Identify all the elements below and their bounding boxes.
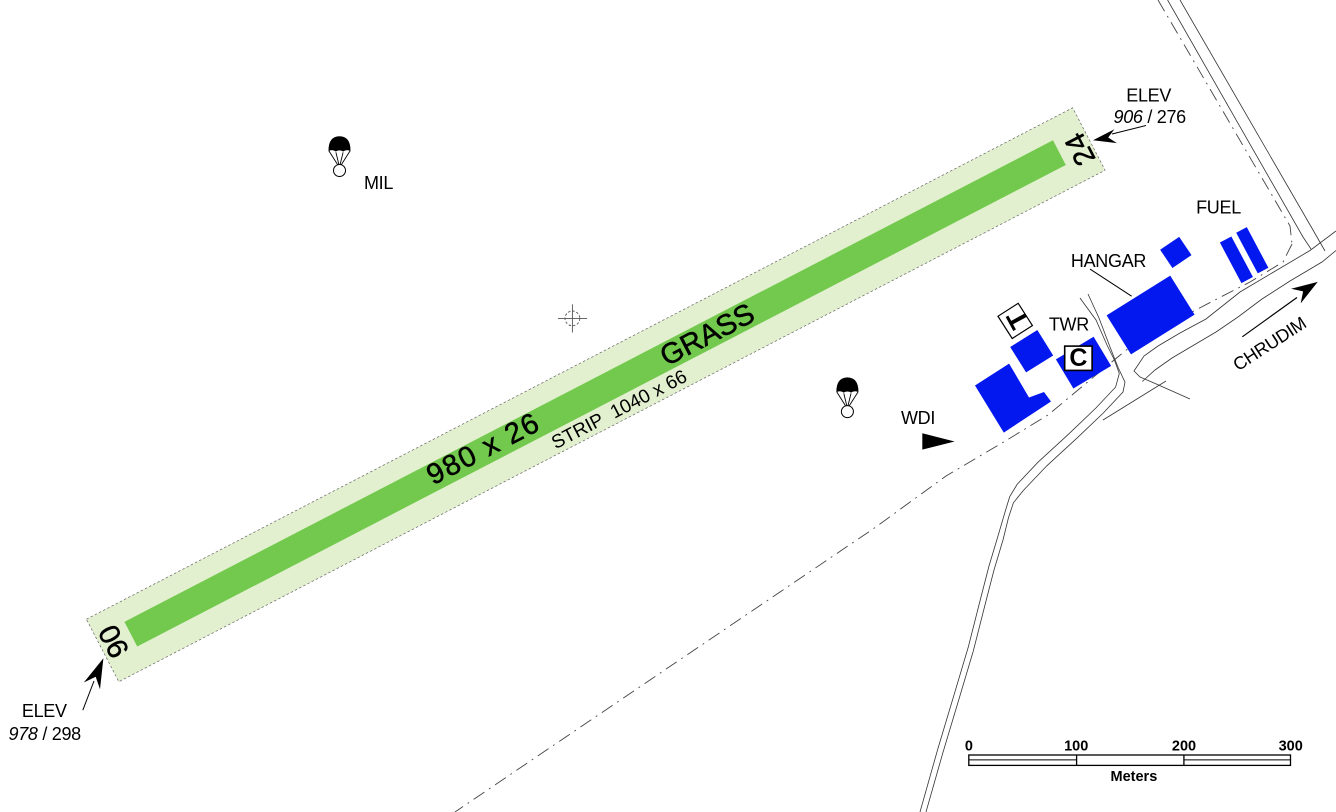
svg-text:300: 300 bbox=[1279, 738, 1303, 754]
svg-text:Meters: Meters bbox=[1111, 769, 1158, 785]
svg-text:TWR: TWR bbox=[1049, 314, 1089, 334]
svg-text:CHRUDIM: CHRUDIM bbox=[1229, 313, 1309, 375]
svg-text:0: 0 bbox=[965, 738, 973, 754]
svg-text:MIL: MIL bbox=[364, 173, 393, 193]
svg-text:ELEV: ELEV bbox=[22, 701, 67, 721]
svg-text:FUEL: FUEL bbox=[1196, 198, 1241, 218]
svg-text:C: C bbox=[1069, 344, 1087, 372]
svg-text:100: 100 bbox=[1064, 738, 1088, 754]
svg-text:200: 200 bbox=[1172, 738, 1196, 754]
svg-text:978 / 298: 978 / 298 bbox=[9, 724, 82, 744]
svg-text:HANGAR: HANGAR bbox=[1071, 251, 1147, 271]
svg-text:ELEV: ELEV bbox=[1126, 85, 1171, 105]
svg-text:WDI: WDI bbox=[901, 408, 935, 428]
svg-text:906 / 276: 906 / 276 bbox=[1114, 107, 1187, 127]
